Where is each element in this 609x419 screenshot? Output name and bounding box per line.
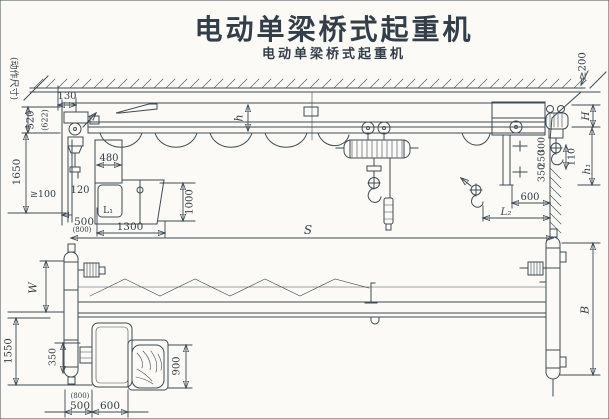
crane-drawing: 电动单梁桥式起重机 电动单梁桥式起重机	[0, 0, 609, 419]
beam-section-symbols	[513, 141, 527, 177]
dim-120: 120	[70, 185, 89, 196]
festoon-wire-plan	[90, 279, 377, 303]
dim-800-plan: (800)	[71, 392, 90, 400]
dim-min200: ≥200	[578, 52, 589, 79]
dim-520: 520	[26, 110, 37, 129]
right-end-assembly	[461, 92, 581, 233]
dim-600-plan: 600	[100, 400, 120, 412]
dim-1000: 1000	[185, 189, 196, 214]
hook-icon	[552, 153, 563, 165]
dim-headroom-h: H	[580, 111, 592, 122]
dim-350-right: 350	[537, 164, 548, 182]
dim-w: W	[27, 281, 40, 294]
dim-girder-h: h	[233, 114, 246, 121]
elevation-view: (动作尺寸) 130 520 (622) 1650 ≥100 120 480 L…	[8, 52, 606, 238]
cover-hatch	[136, 351, 162, 384]
plan-girder	[78, 287, 546, 324]
roof-brace	[550, 92, 581, 140]
festoon-loops	[100, 133, 490, 147]
dim-h1: h₁	[581, 164, 593, 175]
page-title: 电动单梁桥式起重机	[194, 13, 473, 46]
travel-motor	[520, 262, 546, 275]
dim-130: 130	[57, 91, 76, 102]
dim-350-plan: 350	[48, 348, 59, 366]
hook-limit-symbol	[461, 178, 483, 207]
dim-note-vertical: (动作尺寸)	[8, 57, 20, 100]
dim-900: 900	[172, 356, 183, 375]
dim-622: (622)	[41, 109, 50, 131]
plan-dimensions	[8, 243, 600, 417]
dim-b: B	[579, 306, 592, 315]
dim-800: (800)	[73, 226, 92, 234]
trolley-wheel	[362, 122, 374, 134]
dim-l2: L₂	[500, 207, 512, 218]
hook-icon	[368, 188, 381, 202]
pendant-control	[384, 158, 393, 230]
walkway-platform	[116, 104, 157, 113]
dim-600: 600	[520, 192, 539, 203]
parked-hoist	[546, 106, 568, 165]
plan-hoist	[80, 323, 168, 390]
splice-plate	[304, 107, 318, 116]
plan-view: W 1550 350 900 (800) 500 600 B	[4, 229, 601, 417]
cab-window-label: L₁	[103, 205, 113, 216]
left-end-truck	[62, 100, 99, 225]
hook-block	[367, 158, 381, 202]
main-girder	[62, 92, 545, 140]
dim-1300: 1300	[117, 221, 144, 233]
paper-background	[0, 0, 609, 419]
wire-anchor-post	[365, 283, 377, 303]
dim-span-s: S	[304, 223, 312, 237]
dim-110: 110	[567, 148, 578, 166]
dim-1650: 1650	[11, 159, 23, 186]
dim-500-plan: 500	[70, 400, 90, 412]
travel-motor	[78, 263, 105, 277]
dim-1550: 1550	[4, 338, 15, 363]
trolley-wheel	[378, 122, 390, 134]
dim-min100: ≥100	[30, 189, 56, 200]
direction-arrow	[83, 113, 96, 127]
catalog-page: 电动单梁桥式起重机 电动单梁桥式起重机	[0, 0, 609, 419]
ceiling-hatch	[24, 72, 606, 100]
hoist-cover	[132, 345, 164, 388]
dim-480: 480	[99, 153, 118, 164]
title-ghost: 电动单梁桥式起重机	[262, 46, 406, 62]
